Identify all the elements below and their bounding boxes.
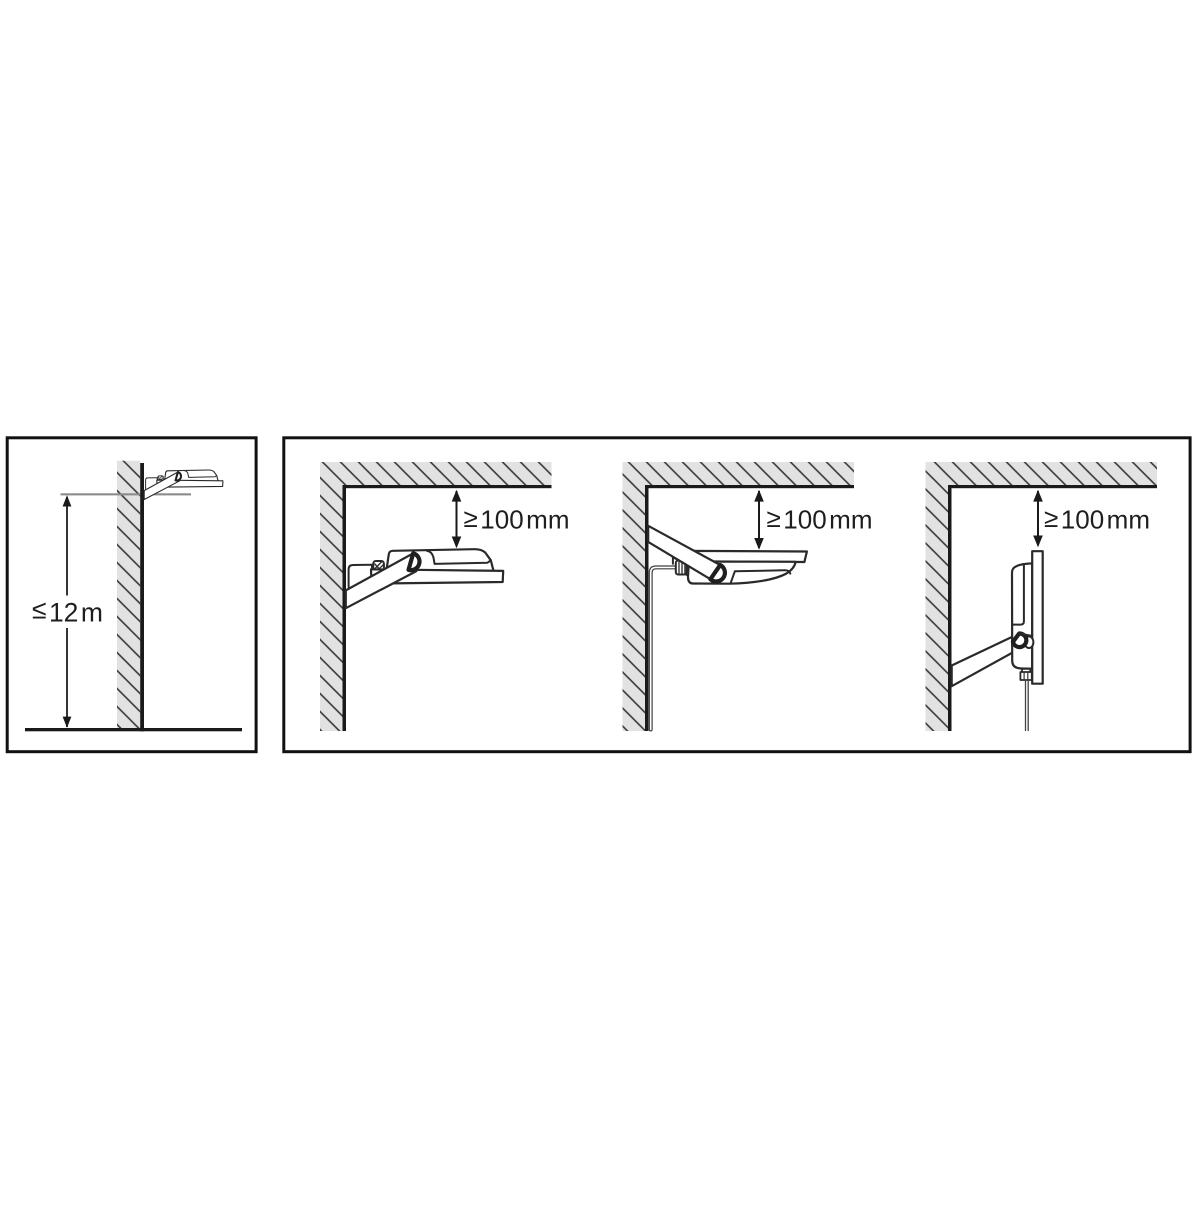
svg-text:≥100mm: ≥100mm: [1044, 503, 1150, 535]
svg-text:≥100mm: ≥100mm: [464, 503, 570, 535]
svg-text:≥100mm: ≥100mm: [767, 503, 873, 535]
svg-text:≤12m: ≤12m: [32, 595, 103, 628]
